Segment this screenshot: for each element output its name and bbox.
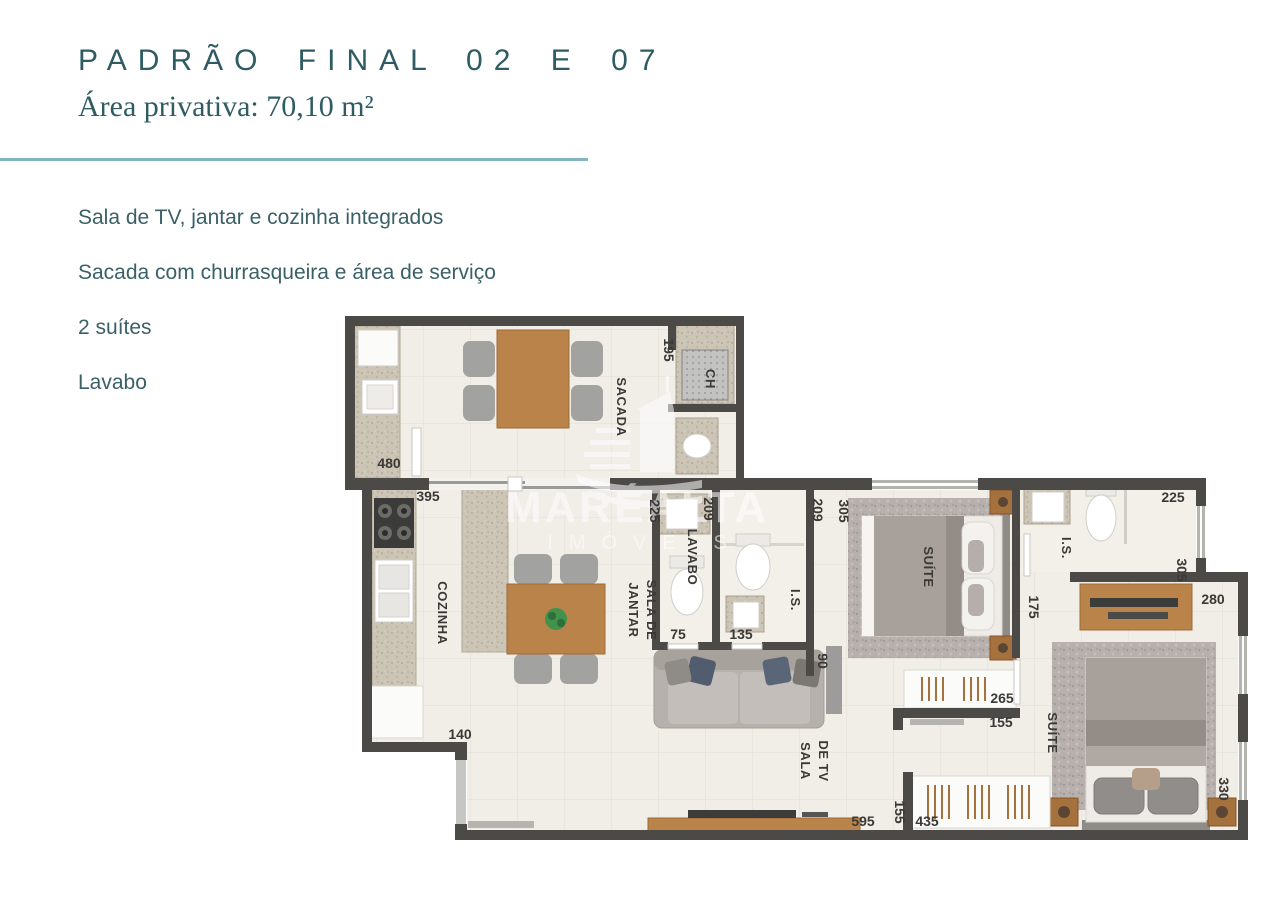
- shower-glass: [1124, 488, 1127, 544]
- sacada-chair: [463, 341, 495, 377]
- wall-is-bottom-b: [762, 642, 814, 650]
- window-suite2-line: [1239, 636, 1242, 694]
- tv-sideboard: [648, 818, 860, 831]
- hall-shelf: [910, 719, 964, 725]
- toilet: [1086, 495, 1116, 541]
- sink: [1032, 492, 1064, 522]
- dining-chair: [514, 654, 552, 684]
- table-plant: [545, 608, 567, 630]
- suite1-blanket: [862, 516, 954, 636]
- dimension-label-209: 209: [701, 497, 717, 521]
- wall-is-bottom-a: [714, 642, 732, 650]
- sacada-table: [497, 330, 569, 428]
- suite1-door-leaf: [1014, 660, 1020, 704]
- dimension-label-155: 155: [892, 800, 908, 824]
- washing-machine: [358, 330, 398, 366]
- sacada-chair: [463, 385, 495, 421]
- dining-chair: [514, 554, 552, 584]
- dimension-label-595: 595: [851, 813, 875, 829]
- dimension-label-280: 280: [1201, 591, 1225, 607]
- window-suite2-line: [1244, 636, 1247, 694]
- refrigerator: [371, 686, 423, 738]
- suite2-accent-pillow: [1132, 768, 1160, 790]
- room-label-sala: SALA: [798, 742, 813, 780]
- dimension-label-305: 305: [836, 499, 852, 523]
- sacada-chair: [571, 385, 603, 421]
- sink: [733, 602, 759, 628]
- suite1-accent-pillow: [968, 584, 984, 616]
- tv: [688, 810, 796, 818]
- wall-lavabo-bottom-b: [698, 642, 714, 650]
- dimension-label-305: 305: [1174, 558, 1190, 582]
- dimension-label-135: 135: [729, 626, 753, 642]
- watermark-sub: IMÓVEIS: [547, 531, 742, 554]
- kitchen-sink-basin: [379, 565, 409, 589]
- dimension-label-435: 435: [915, 813, 939, 829]
- dimension-label-75: 75: [670, 626, 686, 642]
- lavabo-door-leaf: [668, 644, 698, 649]
- room-label-de-tv: DE TV: [816, 740, 831, 781]
- dimension-label-195: 195: [661, 338, 677, 362]
- dining-chair: [560, 554, 598, 584]
- wall-sacada-top: [345, 316, 744, 326]
- floorplan-page: PADRÃO FINAL 02 E 07 Área privativa: 70,…: [0, 0, 1273, 900]
- bathroom1-door-leaf: [732, 644, 762, 649]
- dimension-label-480: 480: [377, 455, 401, 471]
- sacada-chair: [571, 341, 603, 377]
- room-label-i.s.: I.S.: [788, 589, 803, 611]
- room-label-sala-de: SALA DE: [644, 580, 659, 641]
- wall-entry-bottom: [455, 824, 467, 840]
- wall-ch-bottom: [668, 404, 744, 412]
- dimension-label-330: 330: [1216, 777, 1232, 801]
- room-label-cozinha: COZINHA: [435, 581, 450, 644]
- room-label-sacada: SACADA: [614, 377, 629, 436]
- dimension-label-225: 225: [647, 499, 663, 523]
- room-label-jantar: JANTAR: [626, 582, 641, 637]
- suite2-blanket-stripe: [1086, 720, 1206, 746]
- wall-suite1-right: [1012, 488, 1020, 658]
- table-plant-leaf: [557, 619, 565, 627]
- dimension-label-265: 265: [990, 690, 1014, 706]
- dimension-label-395: 395: [416, 488, 440, 504]
- dimension-label-140: 140: [448, 726, 472, 742]
- wall-ch-right: [736, 316, 744, 490]
- window-suite1-line: [872, 486, 978, 489]
- window-suite2-line: [1239, 742, 1242, 800]
- kitchen-sink-basin: [379, 593, 409, 617]
- dimension-label-155: 155: [989, 714, 1013, 730]
- suite2-tv: [1090, 598, 1178, 607]
- peninsula-counter: [462, 488, 508, 652]
- watermark-brand: MARÉALTA: [505, 482, 769, 532]
- dining-chair: [560, 654, 598, 684]
- nightstand-lamp: [1216, 806, 1228, 818]
- floorplan-drawing: MARÉALTA IMÓVEIS SACADACHCOZINHASALA DEJ…: [0, 0, 1273, 900]
- room-label-ch: CH: [703, 369, 718, 389]
- room-label-lavabo: LAVABO: [685, 529, 700, 586]
- suite1-blanket-stripe: [946, 516, 964, 636]
- suite2-blanket-edge: [1086, 746, 1206, 766]
- window-suite1-line: [872, 480, 978, 483]
- dimension-label-225: 225: [1161, 489, 1185, 505]
- bathroom2-door-leaf: [1024, 534, 1030, 576]
- dimension-label-175: 175: [1026, 595, 1042, 619]
- media-device: [802, 812, 828, 817]
- sofa-pillow-gray: [664, 658, 692, 686]
- nightstand-lamp: [998, 497, 1008, 507]
- dimension-label-90: 90: [815, 653, 831, 669]
- wall-lavabo-bottom-a: [652, 642, 668, 650]
- wall-entry-top: [455, 742, 467, 760]
- entry-bench: [468, 821, 534, 828]
- window-suite2-line: [1244, 742, 1247, 800]
- service-door-leaf: [412, 428, 421, 476]
- suite1-accent-pillow: [968, 540, 984, 572]
- nightstand-lamp: [1058, 806, 1070, 818]
- wall-closet1-stub: [893, 708, 903, 730]
- wall-bottom-left: [362, 742, 467, 752]
- table-plant-leaf: [548, 612, 556, 620]
- suite1-sheet-fold: [862, 516, 874, 636]
- entry-door: [456, 760, 466, 824]
- suite2-tv-shelf: [1108, 612, 1168, 619]
- room-label-i.s.: I.S.: [1059, 537, 1074, 559]
- wall-bottom: [455, 830, 1248, 840]
- window-is2-line: [1202, 506, 1205, 558]
- room-label-suíte: SUÍTE: [921, 546, 936, 587]
- wall-sacada-left: [345, 316, 355, 488]
- laundry-sink-basin: [367, 385, 393, 409]
- sofa-pillow-navy: [762, 656, 792, 686]
- dimension-label-209: 209: [810, 498, 826, 522]
- grill-sink: [683, 434, 711, 458]
- nightstand-lamp: [998, 643, 1008, 653]
- room-label-suíte: SUÍTE: [1045, 712, 1060, 753]
- window-is2-line: [1197, 506, 1200, 558]
- suite2-blanket: [1086, 658, 1206, 720]
- wall-kitchen-left: [362, 478, 372, 752]
